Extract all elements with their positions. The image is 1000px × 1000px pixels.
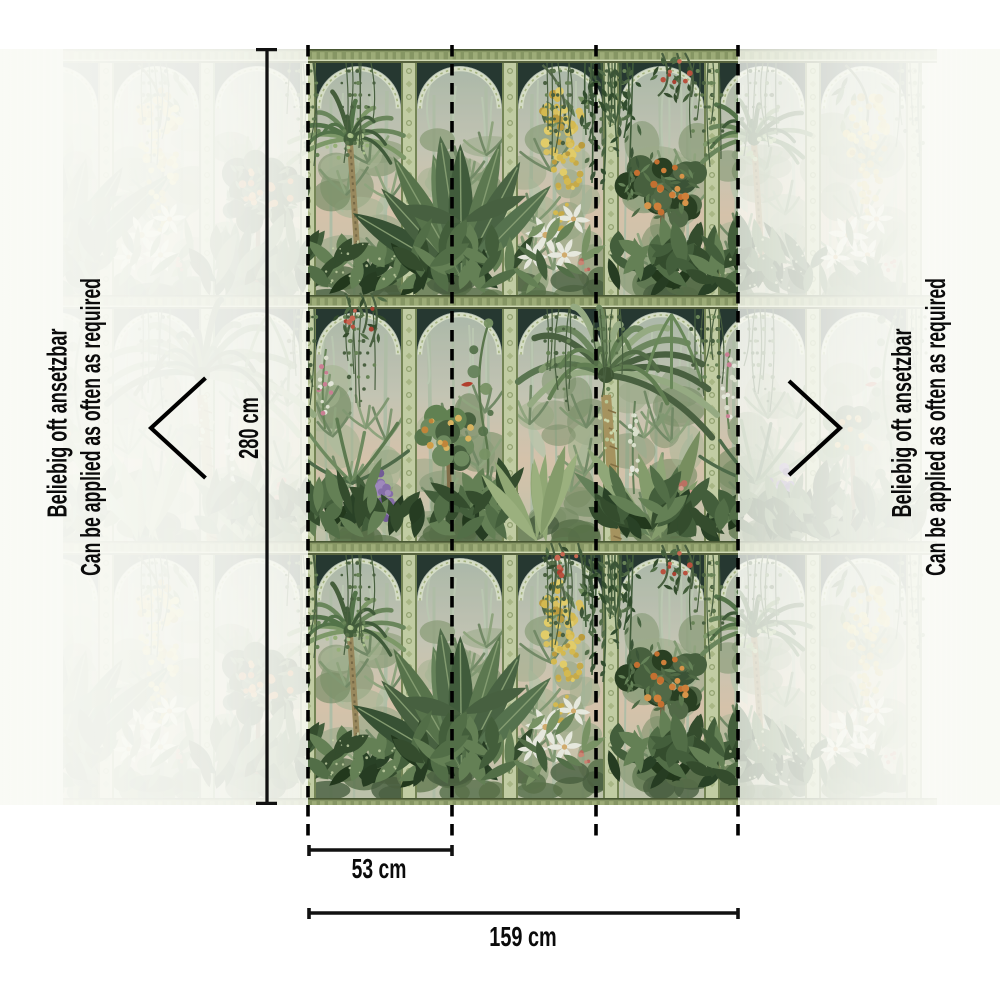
- svg-text:280 cm: 280 cm: [234, 397, 265, 459]
- svg-text:Can be applied as often as req: Can be applied as often as required: [920, 278, 951, 576]
- svg-text:159 cm: 159 cm: [489, 922, 556, 953]
- svg-text:Beliebig oft ansetzbar: Beliebig oft ansetzbar: [887, 328, 918, 517]
- svg-text:Beliebig oft ansetzbar: Beliebig oft ansetzbar: [43, 328, 74, 517]
- svg-text:53 cm: 53 cm: [352, 854, 407, 885]
- svg-text:Can be applied as often as req: Can be applied as often as required: [75, 278, 106, 576]
